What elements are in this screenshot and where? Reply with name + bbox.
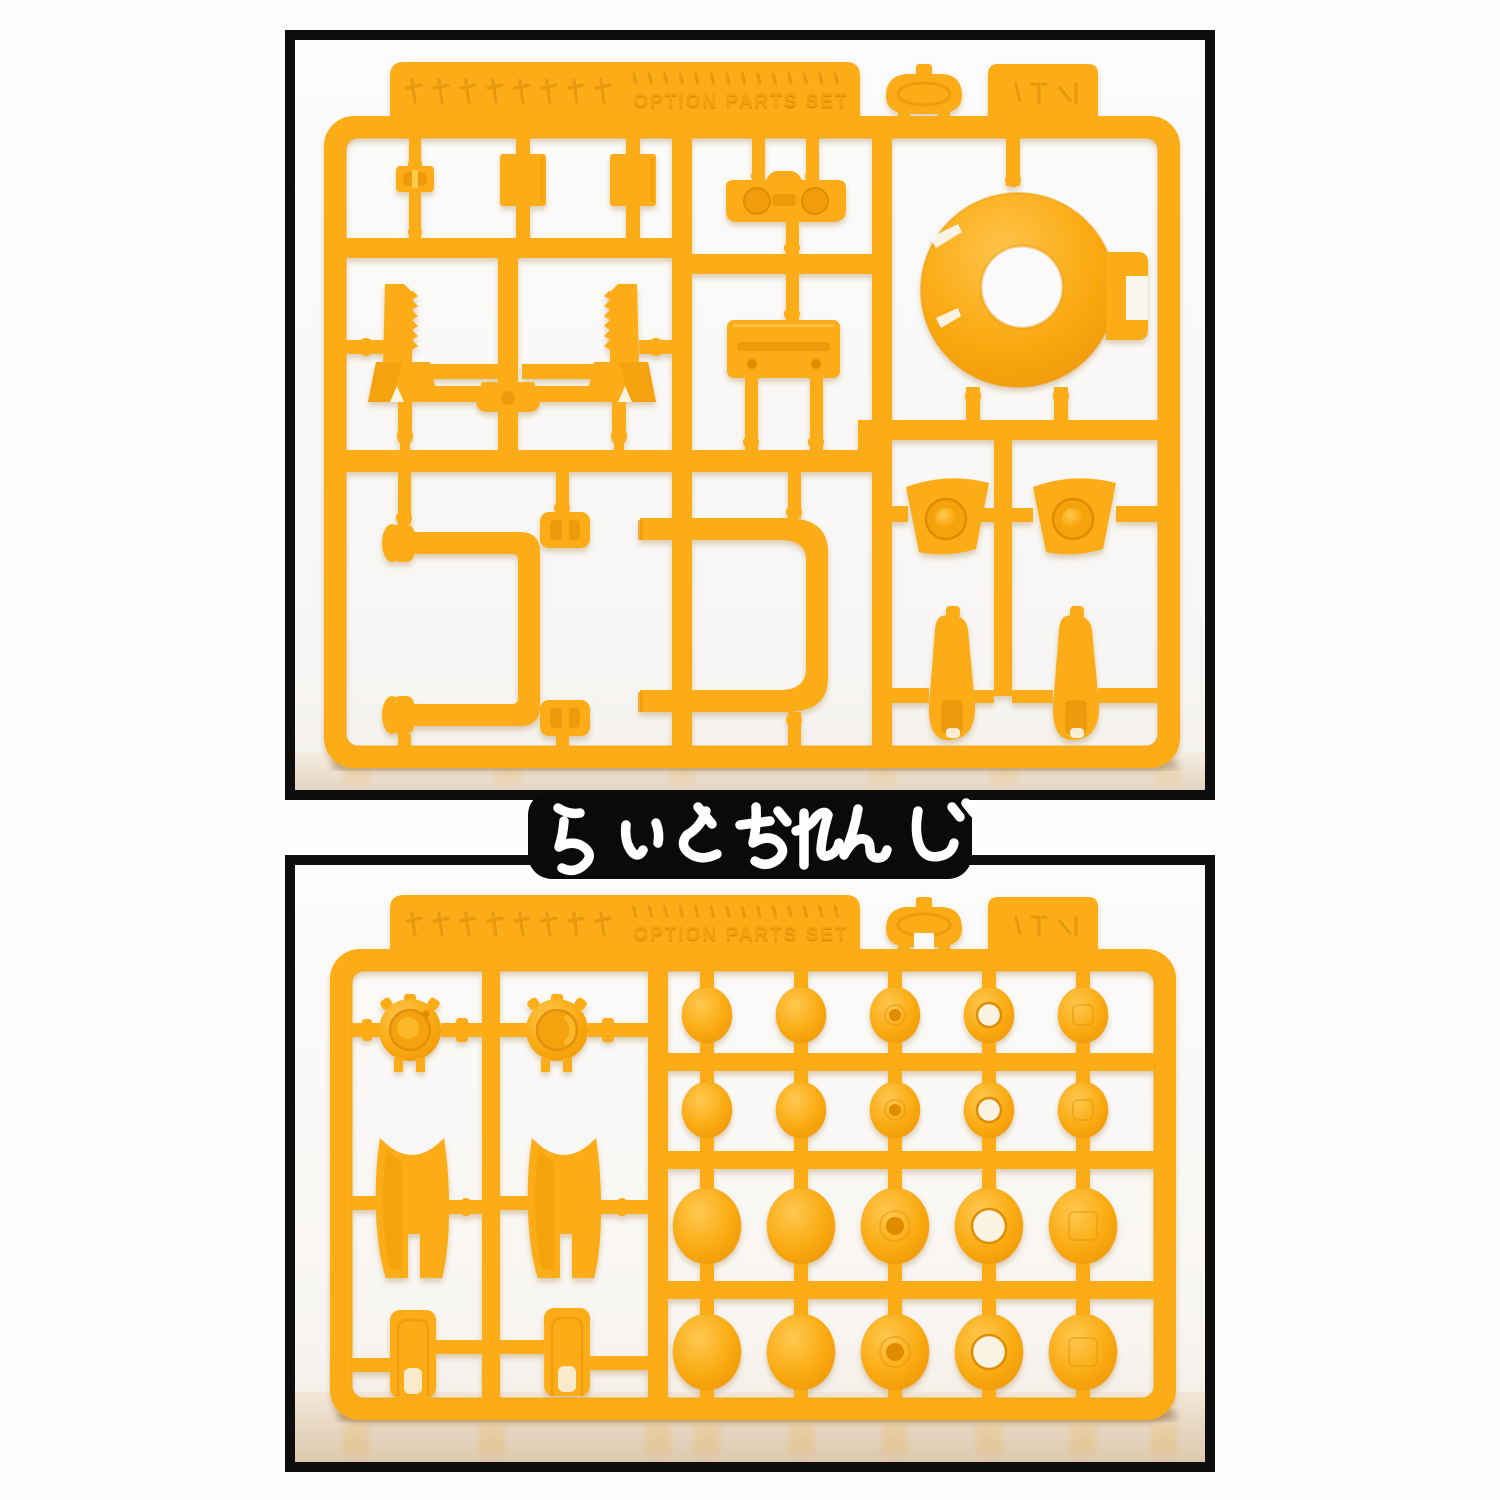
emboss-stroke (774, 74, 776, 83)
molding-tab-main-a: OPTION PARTS SET OPTION PARTS SET (390, 62, 860, 122)
reflection-smudge (1155, 768, 1181, 784)
color-name-label: らいとおれんじ (528, 791, 972, 879)
emboss-stroke (696, 74, 698, 83)
sphere-bead-part (776, 1082, 826, 1138)
embossed-text: OPTION PARTS SET (633, 924, 848, 945)
bead-dimple (889, 1009, 901, 1021)
reflection-smudge (991, 768, 1017, 784)
emboss-stroke (712, 907, 714, 916)
emboss-stroke (820, 74, 822, 83)
molding-tab-main-b: OPTION PARTS SET OPTION PARTS SET (390, 895, 860, 955)
emboss-stroke (820, 907, 822, 916)
sphere-bead-part (1049, 1314, 1117, 1390)
sphere-bead-part (767, 1188, 835, 1264)
label-glyphs (528, 791, 972, 879)
emboss-stroke (681, 74, 683, 83)
emboss-stroke (727, 907, 729, 916)
sphere-bead-part (1058, 1082, 1108, 1138)
emboss-stroke (634, 907, 636, 916)
product-image: OPTION PARTS SET OPTION PARTS SET (0, 0, 1500, 1500)
bead-socket-hole (977, 1098, 1001, 1122)
sphere-bead-part (767, 1314, 835, 1390)
embossed-text: OPTION PARTS SET (633, 91, 848, 112)
reflection-smudge (495, 768, 521, 784)
label-text-strokes (558, 803, 972, 870)
emboss-stroke (836, 74, 838, 83)
runner-b-illustration: OPTION PARTS SET OPTION PARTS SET (295, 865, 1205, 1462)
emboss-stroke (665, 907, 667, 916)
sphere-bead-part (673, 1314, 741, 1390)
emboss-stroke (789, 74, 791, 83)
bead-socket-hole (972, 1209, 1006, 1243)
emboss-stroke (789, 907, 791, 916)
sphere-bead-part (1049, 1188, 1117, 1264)
reflection-smudge (976, 1424, 1002, 1454)
emboss-stroke (665, 74, 667, 83)
emboss-stroke (743, 907, 745, 916)
emboss-stroke (712, 74, 714, 83)
emboss-stroke (805, 907, 807, 916)
emboss-stroke (836, 907, 838, 916)
emboss-stroke (650, 907, 652, 916)
reflection-smudge (669, 768, 695, 784)
emboss-stroke (727, 74, 729, 83)
reflection-smudge (343, 1424, 369, 1454)
emboss-stroke (805, 74, 807, 83)
bead-socket-hole (972, 1335, 1006, 1369)
molding-tab-small-b (988, 897, 1098, 955)
reflection-smudge (479, 1424, 505, 1454)
photo-runner-b: OPTION PARTS SET OPTION PARTS SET (285, 855, 1215, 1472)
emboss-stroke (758, 74, 760, 83)
sphere-bead-part (673, 1188, 741, 1264)
reflection-smudge (882, 1424, 908, 1454)
sphere-bead-part (1058, 987, 1108, 1043)
emboss-stroke (758, 907, 760, 916)
bead-socket-hole (977, 1003, 1001, 1027)
sphere-bead-part (682, 1082, 732, 1138)
bead-dimple (886, 1217, 904, 1235)
reflection-smudge (645, 1424, 671, 1454)
photo-runner-a: OPTION PARTS SET OPTION PARTS SET (285, 30, 1215, 800)
emboss-stroke (696, 907, 698, 916)
reflection-smudge (694, 1424, 720, 1454)
sphere-bead-part (682, 987, 732, 1043)
emboss-stroke (681, 907, 683, 916)
reflection-smudge (343, 768, 369, 784)
molding-tab-small-a (988, 64, 1098, 122)
sphere-bead-part (776, 987, 826, 1043)
emboss-stroke (743, 74, 745, 83)
reflection-smudge (1151, 1424, 1177, 1454)
emboss-stroke (774, 907, 776, 916)
emboss-stroke (634, 74, 636, 83)
reflection-smudge (1070, 1424, 1096, 1454)
emboss-stroke (650, 74, 652, 83)
bead-dimple (889, 1104, 901, 1116)
reflection-smudge (869, 768, 895, 784)
runner-a-illustration: OPTION PARTS SET OPTION PARTS SET (295, 40, 1205, 790)
reflection-smudge (788, 1424, 814, 1454)
bead-dimple (886, 1343, 904, 1361)
